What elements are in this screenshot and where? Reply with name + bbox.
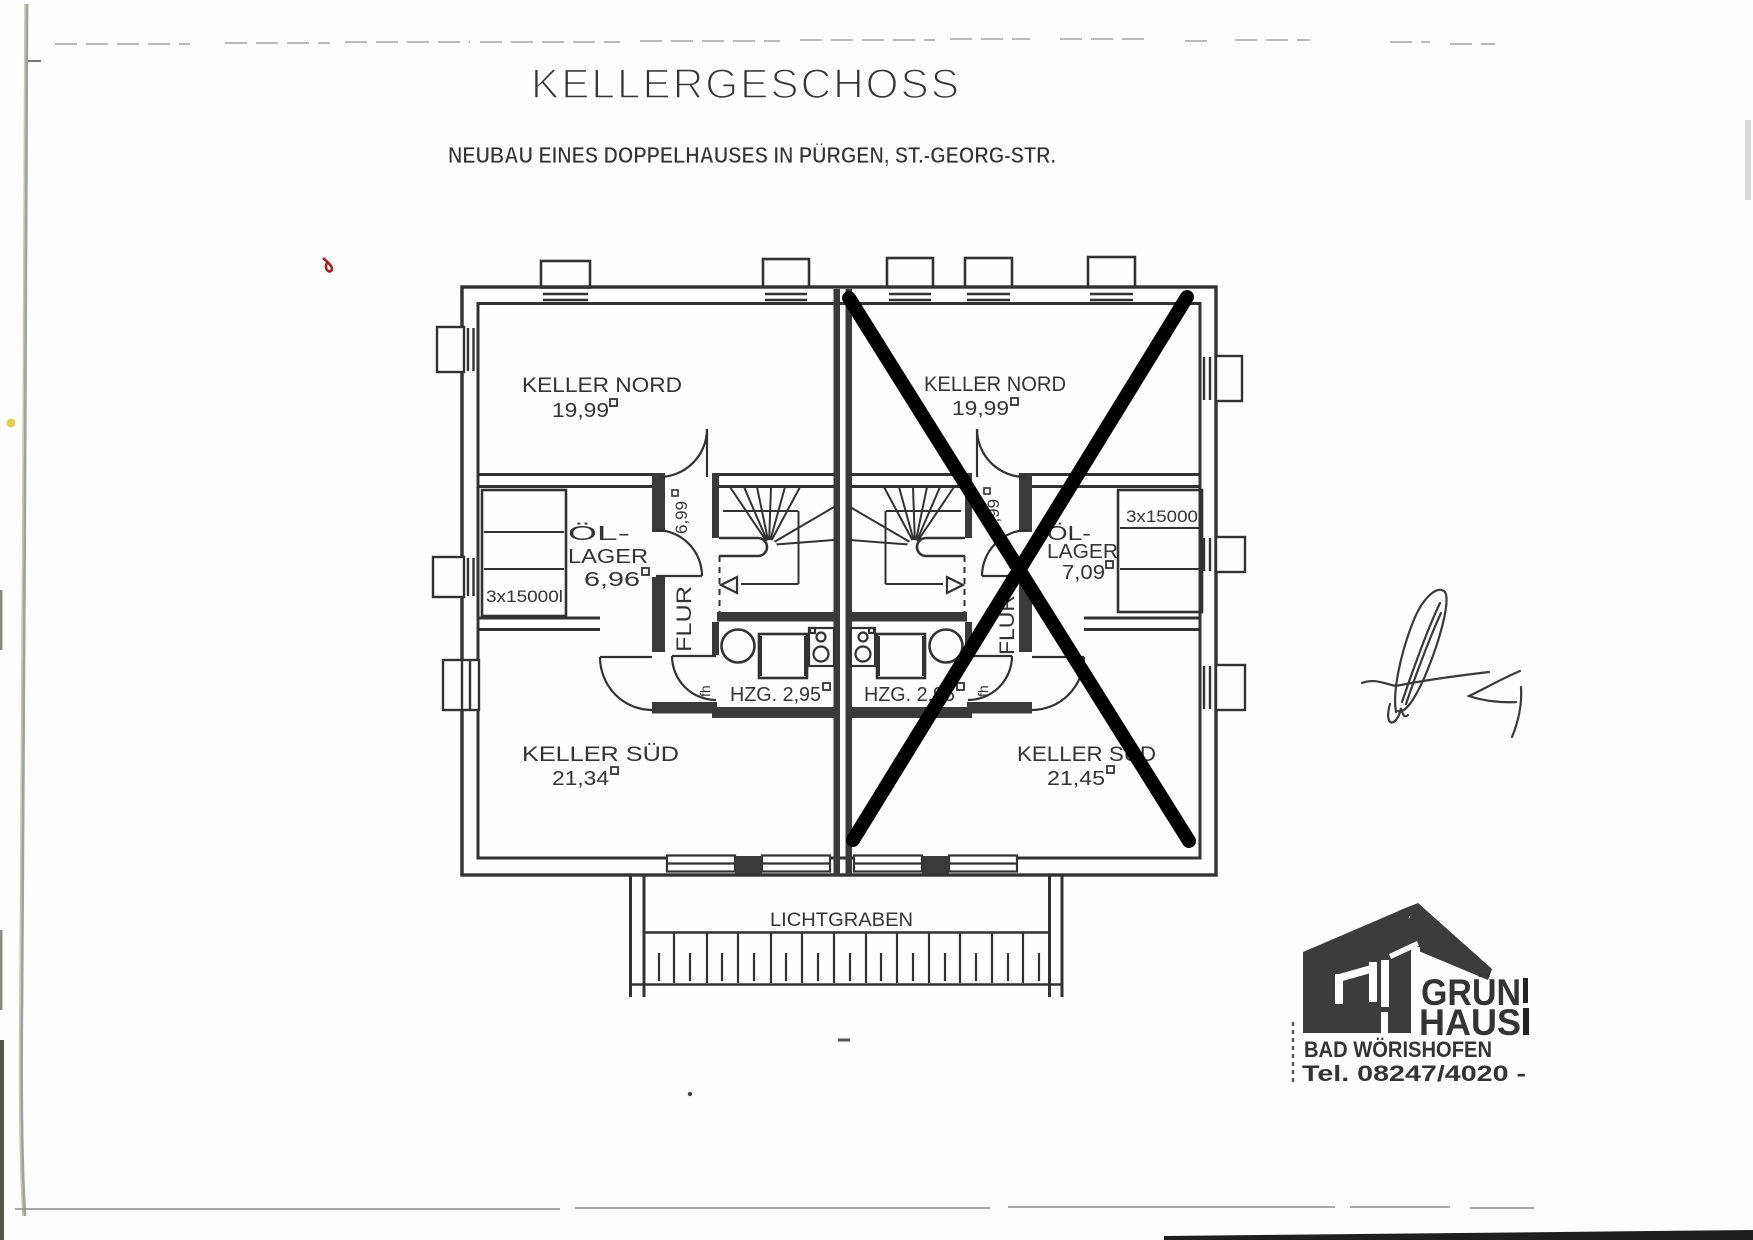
svg-text:KELLER NORD: KELLER NORD (522, 374, 682, 397)
svg-text:7,09: 7,09 (1062, 562, 1105, 584)
svg-text:BAD WÖRISHOFEN: BAD WÖRISHOFEN (1304, 1037, 1492, 1062)
svg-text:3x15000: 3x15000 (1126, 507, 1198, 526)
svg-text:fh: fh (697, 685, 713, 697)
svg-text:21,45: 21,45 (1047, 768, 1105, 790)
svg-text:LAGER: LAGER (568, 546, 648, 568)
svg-text:HZG. 2,95: HZG. 2,95 (730, 684, 821, 706)
svg-text:NEUBAU EINES DOPPELHAUSES IN P: NEUBAU EINES DOPPELHAUSES IN PÜRGEN, ST.… (448, 142, 1056, 168)
svg-text:ÖL-: ÖL- (568, 523, 630, 545)
svg-text:3x15000l: 3x15000l (486, 587, 563, 606)
svg-text:fh: fh (975, 685, 991, 697)
svg-text:KELLERGESCHOSS: KELLERGESCHOSS (531, 60, 961, 107)
svg-text:LICHTGRABEN: LICHTGRABEN (770, 910, 913, 931)
svg-text:6,99: 6,99 (672, 501, 691, 534)
svg-text:19,99: 19,99 (552, 400, 609, 422)
svg-text:KELLER SÜD: KELLER SÜD (522, 743, 679, 766)
svg-text:FLUR: FLUR (673, 586, 696, 652)
svg-text:19,99: 19,99 (952, 398, 1009, 420)
svg-text:LAGER: LAGER (1047, 541, 1118, 563)
svg-text:21,34: 21,34 (552, 768, 609, 790)
svg-text:KELLER NORD: KELLER NORD (924, 373, 1066, 396)
svg-text:6,96: 6,96 (584, 569, 640, 591)
svg-text:Tel. 08247/4020 -: Tel. 08247/4020 - (1302, 1061, 1526, 1086)
